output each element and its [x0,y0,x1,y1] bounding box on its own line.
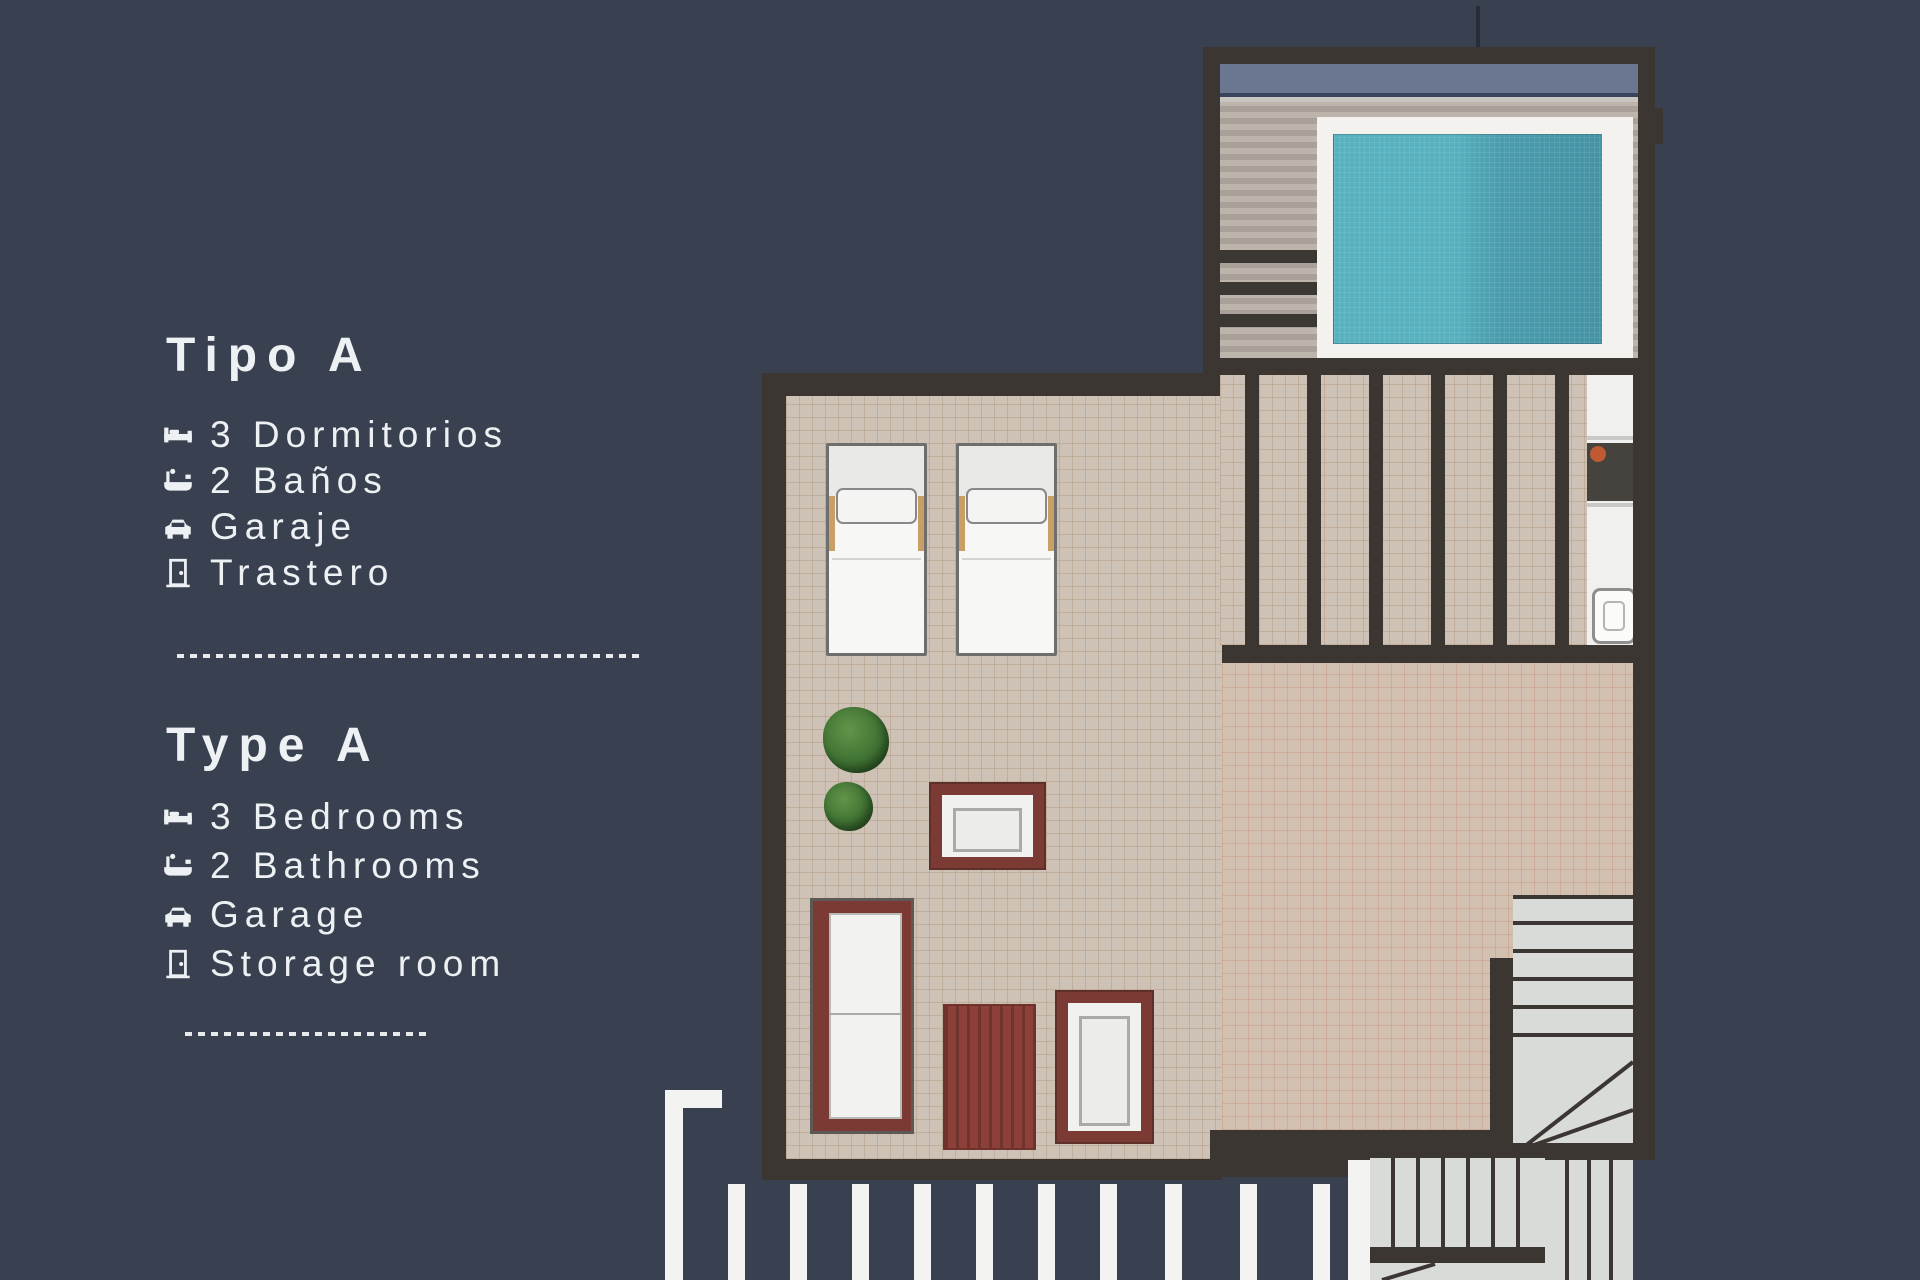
armchair [1055,990,1154,1144]
sun-lounger [956,443,1057,656]
list-item: Storage room [160,945,506,982]
pool-room-window-band [1220,64,1638,102]
wall [762,373,786,1180]
feature-label: Storage room [210,945,506,982]
car-icon [160,509,196,545]
brochure-page: Tipo A 3 Dormitorios 2 Baños Garaje Tras… [0,0,1920,1280]
feature-label: 3 Bedrooms [210,798,470,835]
car-icon [160,897,196,933]
door-icon [160,555,196,591]
railing-beam [1313,1184,1330,1280]
feature-label: Trastero [210,554,394,591]
feature-label: 2 Bathrooms [210,847,486,884]
plan-tick-mark [1476,6,1480,47]
feature-label: Garage [210,896,369,933]
wall [1222,645,1655,663]
section-title-es: Tipo A [166,332,373,380]
cooktop [1590,446,1606,462]
feature-list-es: 3 Dormitorios 2 Baños Garaje Trastero [160,416,508,591]
pergola-slat [1307,375,1321,645]
list-item: 2 Bathrooms [160,847,506,884]
section-title-en: Type A [166,722,381,770]
railing-beam [1038,1184,1055,1280]
list-item: Trastero [160,554,508,591]
pergola-slat [1493,375,1507,645]
wall-nub [1655,108,1663,144]
potted-plant [824,782,873,831]
sink [1592,588,1636,644]
potted-plant [823,707,889,773]
list-item: Garage [160,896,506,933]
feature-list-en: 3 Bedrooms 2 Bathrooms Garage Storage ro… [160,798,506,982]
pergola-slat [1431,375,1445,645]
bed-icon [160,799,196,835]
swimming-pool [1333,134,1602,344]
list-item: 3 Dormitorios [160,416,508,453]
divider [185,1032,430,1036]
list-item: 2 Baños [160,462,508,499]
outdoor-sofa [810,898,914,1134]
feature-label: 3 Dormitorios [210,416,508,453]
wall [762,1159,1222,1180]
railing-beam [1240,1184,1257,1280]
deck-stripe [1220,314,1317,327]
deck-stripe [1220,250,1317,263]
pergola-slat [1369,375,1383,645]
cabinet-seam [1587,436,1633,440]
pergola-slat [1555,375,1569,645]
railing-beam [852,1184,869,1280]
rug [943,1004,1036,1150]
feature-label: Garaje [210,508,357,545]
coffee-table [929,782,1046,870]
bed-icon [160,417,196,453]
feature-label: 2 Baños [210,462,388,499]
sun-lounger [826,443,927,656]
bath-icon [160,848,196,884]
divider [177,654,645,658]
staircase [1340,880,1660,1280]
cabinet-seam [1587,503,1633,507]
pergola-slat [1245,375,1259,645]
railing-beam [728,1184,745,1280]
railing-beam [1100,1184,1117,1280]
corridor-floor [1220,375,1633,645]
railing-beam [1165,1184,1182,1280]
fence-wall [665,1090,683,1280]
railing-beam [790,1184,807,1280]
deck-stripe [1220,282,1317,295]
wall [762,373,1220,396]
railing-beam [914,1184,931,1280]
door-icon [160,946,196,982]
list-item: 3 Bedrooms [160,798,506,835]
railing-beam [976,1184,993,1280]
list-item: Garaje [160,508,508,545]
fence-wall [665,1090,722,1108]
bath-icon [160,463,196,499]
